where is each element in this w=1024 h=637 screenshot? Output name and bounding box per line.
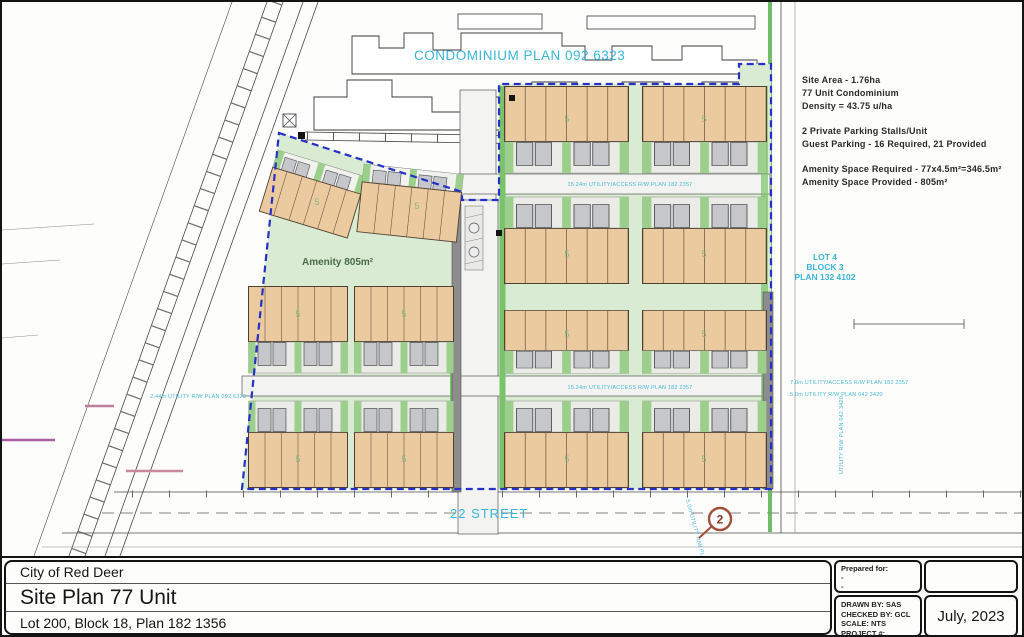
empty-box <box>924 560 1018 593</box>
svg-text:5: 5 <box>701 329 706 339</box>
svg-text:BLOCK 3: BLOCK 3 <box>806 262 844 272</box>
svg-text:15.24m UTILITY/ACCESS R/W PLAN: 15.24m UTILITY/ACCESS R/W PLAN 182 2357 <box>568 182 693 188</box>
prepared-for-dash: - <box>841 582 920 591</box>
condo-plan-label: CONDOMINIUM PLAN 092 6323 <box>414 48 625 63</box>
svg-text:5: 5 <box>701 249 706 259</box>
svg-text:5: 5 <box>701 454 706 464</box>
drawn-by-box: DRAWN BY: SAS CHECKED BY: GCL SCALE: NTS… <box>834 595 922 637</box>
building-block <box>643 310 767 373</box>
svg-text:5: 5 <box>295 309 300 319</box>
svg-text:UTILITY R/W PLAN 042 3420: UTILITY R/W PLAN 042 3420 <box>839 396 845 474</box>
site-notes: Site Area - 1.76ha 77 Unit Condominium D… <box>802 74 1020 189</box>
prepared-for-box: Prepared for: - - <box>834 560 922 593</box>
building-block <box>249 401 348 488</box>
svg-text:5: 5 <box>401 454 406 464</box>
checked-by: CHECKED BY: GCL <box>841 610 920 620</box>
svg-text:7.0m UTILITY/ACCESS R/W PLAN 1: 7.0m UTILITY/ACCESS R/W PLAN 182 2357 <box>790 380 908 386</box>
prepared-for-dash: - <box>841 573 920 582</box>
note-line: Site Area - 1.76ha <box>802 74 1020 87</box>
title-block-main: City of Red Deer Site Plan 77 Unit Lot 2… <box>4 560 832 635</box>
project-number: PROJECT #: 1161109875 <box>841 629 920 637</box>
title-block-info: Prepared for: - - DRAWN BY: SAS CHECKED … <box>834 558 1022 637</box>
svg-text:5: 5 <box>701 114 706 124</box>
drawing-title: Site Plan 77 Unit <box>6 584 830 613</box>
svg-text:LOT 4: LOT 4 <box>813 252 837 262</box>
building-block <box>643 401 767 488</box>
note-line: 77 Unit Condominium <box>802 87 1020 100</box>
svg-text:2.44m UTILITY R/W PLAN 092 632: 2.44m UTILITY R/W PLAN 092 6323 <box>150 394 246 400</box>
svg-text:5: 5 <box>295 454 300 464</box>
svg-text:2: 2 <box>717 513 724 527</box>
building-block <box>643 197 767 284</box>
note-line: Density = 43.75 u/ha <box>802 100 1020 113</box>
street-22-label: 22 STREET <box>450 506 528 521</box>
corner-marker <box>283 114 296 127</box>
building-block <box>355 401 454 488</box>
building-block <box>643 87 767 174</box>
svg-text:5: 5 <box>564 114 569 124</box>
svg-text:PLAN 132 4102: PLAN 132 4102 <box>795 272 856 282</box>
scale-label: SCALE: NTS <box>841 619 920 629</box>
svg-text:5: 5 <box>564 249 569 259</box>
note-line: Guest Parking - 16 Required, 21 Provided <box>802 138 1020 151</box>
building-block <box>355 287 454 374</box>
svg-text:5: 5 <box>564 454 569 464</box>
tilted-building-2 <box>357 164 464 242</box>
date-box: July, 2023 <box>924 595 1018 637</box>
svg-text:5: 5 <box>401 309 406 319</box>
svg-text:15.24m UTILITY/ACCESS R/W PLAN: 15.24m UTILITY/ACCESS R/W PLAN 182 2357 <box>568 385 693 391</box>
drawn-by: DRAWN BY: SAS <box>841 600 920 610</box>
building-block <box>505 401 629 488</box>
note-line: Amenity Space Provided - 805m² <box>802 176 1020 189</box>
building-block <box>505 87 629 174</box>
svg-text:5.0m UTILITY R/W PLAN 042 3420: 5.0m UTILITY R/W PLAN 042 3420 <box>790 392 883 398</box>
svg-text:5: 5 <box>314 197 319 207</box>
building-block <box>505 197 629 284</box>
visitor-parking-bay <box>465 206 483 270</box>
legal-description: Lot 200, Block 18, Plan 182 1356 <box>6 612 830 633</box>
building-block <box>249 287 348 374</box>
building-block <box>505 310 629 373</box>
svg-text:5: 5 <box>414 201 419 211</box>
drawing-sheet: CONDOMINIUM PLAN 092 6323 Amenity 805m² … <box>0 0 1024 637</box>
note-line: 2 Private Parking Stalls/Unit <box>802 125 1020 138</box>
note-line: Amenity Space Required - 77x4.5m²=346.5m… <box>802 163 1020 176</box>
svg-text:5: 5 <box>564 329 569 339</box>
municipality-label: City of Red Deer <box>6 562 830 584</box>
prepared-for-label: Prepared for: <box>841 564 920 573</box>
amenity-label: Amenity 805m² <box>302 257 374 268</box>
title-block: City of Red Deer Site Plan 77 Unit Lot 2… <box>2 556 1022 637</box>
